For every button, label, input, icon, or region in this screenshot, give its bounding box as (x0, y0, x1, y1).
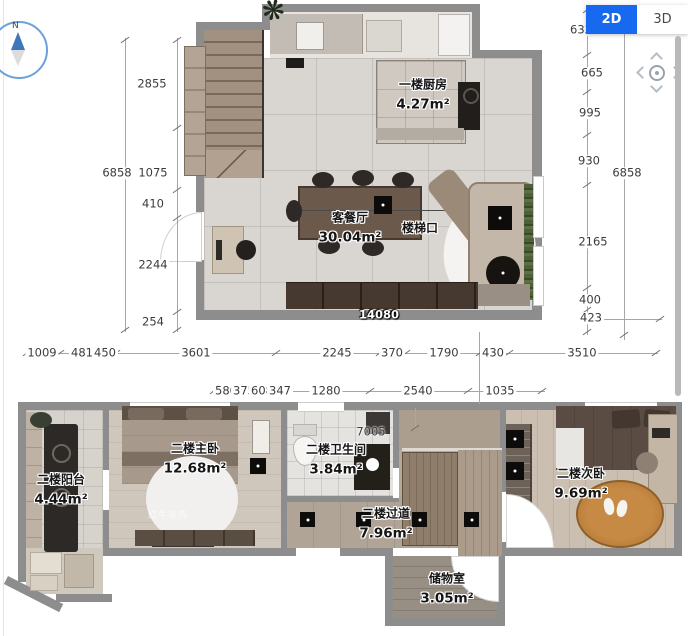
tick-mark (656, 316, 665, 323)
dim-label: 995 (577, 107, 603, 119)
room-area: 3.84m² (306, 463, 366, 477)
room-name: 二楼阳台 (34, 473, 87, 485)
ceiling-light (412, 512, 427, 527)
dim-label: 3510 (565, 347, 598, 359)
washer-door (52, 444, 71, 463)
tick-mark (173, 327, 182, 334)
bed-sheet (556, 428, 584, 468)
toilet-tank (293, 424, 317, 436)
room-area: 4.27m² (396, 98, 449, 112)
wall (262, 4, 480, 12)
dim-label: 665 (579, 67, 605, 79)
dimension-line (177, 38, 178, 332)
room-label-balcony-2f: 二楼阳台 4.44m² (34, 473, 87, 507)
vertical-scrollbar[interactable] (675, 36, 681, 396)
dimension-line (479, 332, 480, 404)
room-label-storage: 储物室 3.05m² (420, 572, 473, 606)
staircase (204, 30, 264, 150)
desk-monitor (652, 428, 670, 438)
fridge (438, 14, 470, 56)
floorplan-canvas[interactable]: ❋ (0, 0, 688, 636)
view-3d-button[interactable]: 3D (637, 5, 688, 34)
view-mode-toggle: 2D 3D (586, 5, 688, 34)
wall (385, 548, 393, 626)
dim-label: 254 (140, 316, 166, 328)
room-name: 二楼卫生间 (306, 443, 366, 455)
dim-label: 1075 (136, 167, 169, 179)
room-label-stairwell: 楼梯口 (402, 222, 438, 234)
cooktop-burner (463, 88, 479, 104)
room-label-kitchen-1f: 一楼厨房 4.27m² (396, 78, 449, 112)
dim-label: 1009 (25, 347, 58, 359)
room-area: 3.05m² (420, 592, 473, 606)
small-table (366, 20, 402, 52)
dim-label: 1035 (483, 385, 516, 397)
door-opening (296, 548, 340, 556)
range-hood (286, 58, 304, 68)
dim-label: 6858 (610, 167, 643, 179)
door-opening (103, 470, 109, 510)
dim-label: 2165 (576, 236, 609, 248)
ceiling-light (250, 458, 266, 474)
tick-mark (121, 327, 130, 334)
dimension-line (600, 319, 662, 320)
room-name: 储物室 (420, 572, 473, 584)
partition-wall (281, 402, 287, 548)
media-console (286, 282, 478, 309)
room-area: 4.44m² (34, 493, 87, 507)
kitchen-sink (296, 22, 324, 50)
pan-down-icon[interactable] (650, 80, 663, 93)
closet-corner-box (30, 552, 62, 574)
dim-label: 2245 (320, 347, 353, 359)
dim-label: 3601 (179, 347, 212, 359)
room-name: 二楼主卧 (164, 442, 227, 454)
room-name: 一楼厨房 (396, 78, 449, 90)
room-name: 二楼过道 (359, 507, 412, 519)
dim-label-floor2-width: 7005 (354, 426, 387, 438)
master-wardrobe (135, 530, 255, 546)
dining-chair (352, 170, 374, 186)
dim-label: 930 (576, 155, 602, 167)
wall (497, 548, 682, 556)
room-label-living-dining: 客餐厅 30.04m² (319, 211, 382, 245)
door-opening (393, 468, 399, 498)
desk-monitor (216, 240, 222, 260)
wall (18, 402, 26, 582)
desk-chair (236, 240, 256, 260)
window (533, 246, 544, 306)
wall (56, 594, 112, 602)
recenter-dot (655, 71, 659, 75)
door-swing (160, 212, 202, 262)
dim-label: 423 (578, 312, 604, 324)
room-area: 7.96m² (359, 527, 412, 541)
room-name: 二楼次卧 (554, 467, 607, 479)
ceiling-light (464, 512, 479, 527)
room-name: 客餐厅 (319, 211, 382, 223)
dim-label: 400 (577, 294, 603, 306)
window (533, 176, 544, 238)
vanity-sink (366, 458, 379, 471)
view-2d-button[interactable]: 2D (586, 5, 637, 34)
dining-chair (392, 172, 414, 188)
recenter-icon[interactable] (649, 65, 665, 81)
dining-chair (312, 172, 334, 188)
stair-side-shelf (184, 46, 206, 176)
dim-label: 2855 (135, 78, 168, 90)
tick-mark (538, 388, 547, 395)
wall (103, 548, 393, 556)
pillow (186, 408, 222, 420)
dimension-line (125, 38, 126, 332)
pillow (128, 408, 164, 420)
closet-panel (458, 450, 502, 556)
dim-label: 410 (140, 198, 166, 210)
dim-label: 370 (379, 347, 405, 359)
dim-label-overall-width: 14080 (357, 309, 401, 321)
dim-label: 2540 (401, 385, 434, 397)
desk-chair (636, 452, 658, 474)
closet-corner-box (30, 575, 58, 591)
ceiling-light (506, 430, 524, 448)
ceiling-light (300, 512, 315, 527)
compass-needle-north (11, 32, 25, 50)
room-area: 30.04m² (319, 231, 382, 245)
mirror-panel (252, 420, 270, 454)
dim-label: 6858 (100, 167, 133, 179)
compass-north-label: N (12, 21, 19, 31)
dim-label: 1280 (309, 385, 342, 397)
window (298, 402, 344, 412)
wall (472, 50, 540, 58)
ceiling-light (506, 462, 524, 480)
room-label-hallway-2f: 二楼过道 7.96m² (359, 507, 412, 541)
watermark-text: 红牛装饰 (148, 511, 188, 521)
dim-label: 450 (92, 347, 118, 359)
pillow (611, 409, 640, 429)
room-label-secondary-2f: 二楼次卧 9.69m² (554, 467, 607, 501)
watermark: 红牛装饰 (148, 508, 188, 521)
tick-mark (652, 350, 661, 357)
room-area: 12.68m² (164, 462, 227, 476)
dim-label: 2244 (136, 259, 169, 271)
left-panel-edge (3, 0, 4, 636)
dining-chair (286, 200, 302, 222)
staircase-landing (204, 150, 264, 178)
wall (385, 618, 505, 626)
room-label-bath-2f: 二楼卫生间 3.84m² (306, 443, 366, 477)
dim-label: 1790 (427, 347, 460, 359)
ceiling-light (488, 206, 512, 230)
partition-wall (287, 496, 393, 502)
compass[interactable]: N (0, 21, 48, 79)
dim-label: 347 (267, 385, 293, 397)
pan-left-icon[interactable] (636, 66, 649, 79)
room-name: 楼梯口 (402, 222, 438, 234)
room-label-master-2f: 二楼主卧 12.68m² (164, 442, 227, 476)
closet-corner-box (64, 554, 94, 588)
room-area: 9.69m² (554, 487, 607, 501)
kitchen-lower-counter (376, 128, 464, 140)
balcony-plant (30, 412, 52, 428)
bench (478, 284, 530, 306)
compass-needle-south (11, 50, 25, 66)
dim-label: 430 (480, 347, 506, 359)
pan-up-icon[interactable] (650, 52, 663, 65)
